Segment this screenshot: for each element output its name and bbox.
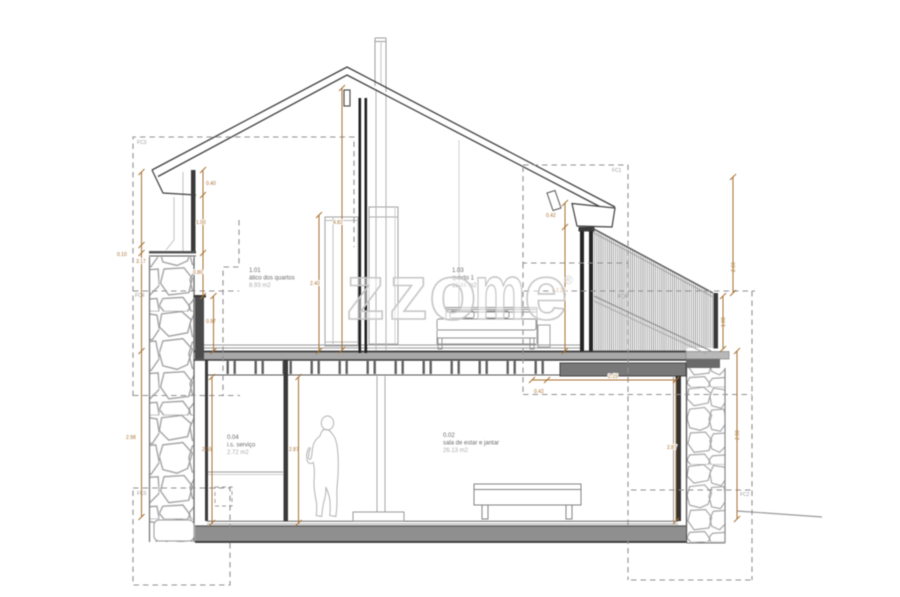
svg-text:2.87: 2.87 <box>667 445 677 451</box>
svg-text:2.87: 2.87 <box>289 447 299 453</box>
svg-text:2.72 m2: 2.72 m2 <box>227 450 249 456</box>
svg-text:1.08: 1.08 <box>721 317 727 327</box>
svg-text:8.93 m2: 8.93 m2 <box>249 283 271 289</box>
svg-text:z: z <box>389 248 428 336</box>
svg-text:FC4: FC4 <box>135 293 145 299</box>
svg-text:e: e <box>524 248 567 336</box>
svg-text:2.60: 2.60 <box>731 262 737 272</box>
svg-text:2.55: 2.55 <box>202 447 212 453</box>
svg-text:0.10: 0.10 <box>117 252 127 258</box>
svg-text:0.42: 0.42 <box>534 389 544 395</box>
svg-text:2.98: 2.98 <box>126 435 136 441</box>
svg-text:FC1: FC1 <box>612 168 622 174</box>
svg-text:2.40: 2.40 <box>310 281 320 287</box>
svg-text:FC2: FC2 <box>740 492 750 498</box>
svg-text:FC3: FC3 <box>137 140 147 146</box>
svg-text:1.00: 1.00 <box>196 220 206 226</box>
svg-text:m: m <box>474 249 525 337</box>
svg-text:0.04: 0.04 <box>227 435 239 441</box>
svg-text:®: ® <box>564 273 573 287</box>
svg-text:2.15: 2.15 <box>608 374 618 380</box>
svg-text:0.40: 0.40 <box>206 181 216 187</box>
svg-text:o: o <box>429 248 477 336</box>
svg-text:3.17: 3.17 <box>136 259 146 265</box>
svg-text:sala de estar e jantar: sala de estar e jantar <box>443 441 499 447</box>
svg-text:z: z <box>346 248 385 336</box>
svg-text:2.98: 2.98 <box>735 430 741 440</box>
svg-text:0.80: 0.80 <box>193 270 203 276</box>
svg-text:i.s. serviço: i.s. serviço <box>227 443 256 449</box>
svg-text:FC6: FC6 <box>618 294 628 300</box>
svg-text:ático dos quartos: ático dos quartos <box>249 276 295 282</box>
svg-text:26.13 m2: 26.13 m2 <box>443 448 469 454</box>
svg-text:0.97: 0.97 <box>206 319 216 325</box>
svg-text:0.42: 0.42 <box>546 213 556 219</box>
svg-text:0.02: 0.02 <box>443 433 455 439</box>
svg-text:4.82: 4.82 <box>333 220 343 226</box>
svg-text:1.01: 1.01 <box>249 268 261 274</box>
